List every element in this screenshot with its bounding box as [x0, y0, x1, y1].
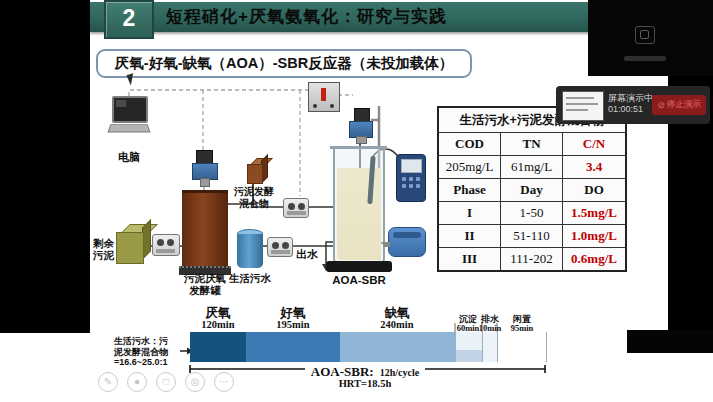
participant-video-tile — [588, 0, 713, 76]
computer-label: 电脑 — [108, 151, 150, 163]
screen-share-overlay: 屏幕演示中 01:00:51 ⊘ 停止演示 — [556, 86, 710, 124]
timer-control-box — [308, 82, 340, 112]
timeline-segment-anoxic — [340, 332, 455, 362]
zoom-tool-button[interactable]: ◎ — [185, 372, 205, 392]
presenter-toolbar: ✎ ● □ ◎ ⋯ — [98, 372, 234, 392]
parameters-table: 生活污水+污泥发酵混合物 COD TN C/N 205mg/L 61mg/L 3… — [437, 106, 627, 272]
participant-name-dim — [624, 56, 666, 61]
table-cell: 111-202 — [501, 248, 563, 270]
table-cell: TN — [501, 133, 563, 156]
timeline-segment-aerobic — [246, 332, 340, 362]
timeline-segment-anaerobic — [190, 332, 246, 362]
frame-tool-button[interactable]: □ — [156, 372, 176, 392]
stop-icon: ⊘ — [657, 101, 665, 110]
fermenter-tank — [182, 190, 228, 270]
stop-share-button[interactable]: ⊘ 停止演示 — [652, 95, 706, 115]
table-cell: I — [439, 202, 501, 225]
table-cell: C/N — [563, 133, 625, 156]
sewage-label: 生活污水 — [226, 272, 274, 284]
excess-sludge-label: 剩余污泥 — [92, 237, 115, 261]
table-cell: 1.5mg/L — [563, 202, 625, 225]
slide-title: 短程硝化+厌氧氨氧化：研究与实践 — [166, 5, 636, 28]
table-cell: Phase — [439, 179, 501, 202]
table-cell: Day — [501, 179, 563, 202]
pen-tool-button[interactable]: ✎ — [98, 372, 118, 392]
bottom-right-tile — [627, 330, 713, 353]
timeline-segment-idle — [497, 332, 547, 362]
table-cell: II — [439, 225, 501, 248]
table-cell: III — [439, 248, 501, 270]
table-cell: 205mg/L — [439, 156, 501, 179]
reactor-vessel — [333, 146, 385, 264]
ratio-label: 生活污水：污 泥发酵混合物 =16.6~25.0:1 — [114, 336, 182, 368]
peristaltic-pump-sewage — [267, 237, 293, 257]
timeline-segment-drain — [482, 332, 498, 362]
share-preview-thumbnail[interactable] — [562, 91, 604, 121]
table-cell: DO — [563, 179, 625, 202]
laser-tool-button[interactable]: ● — [127, 372, 147, 392]
table-cell: 51-110 — [501, 225, 563, 248]
peristaltic-pump-mixture — [283, 198, 309, 218]
keyboard-icon — [107, 124, 150, 132]
air-pump — [388, 227, 426, 257]
slide-subtitle: 厌氧-好氧-缺氧（AOA）-SBR反应器（未投加载体） — [96, 49, 472, 78]
table-cell: 0.6mg/L — [563, 248, 625, 270]
letterbox-left — [0, 0, 90, 333]
timeline-segment-settle — [455, 332, 483, 362]
reactor-base — [326, 261, 392, 272]
computer-icon — [112, 96, 148, 123]
shared-slide: 2 短程硝化+厌氧氨氧化：研究与实践 厌氧-好氧-缺氧（AOA）-SBR反应器（… — [90, 0, 668, 402]
fermenter-label: 污泥厌氧发酵罐 — [180, 272, 230, 296]
reactor-label: AOA-SBR — [330, 274, 388, 286]
meeting-screen: 2 短程硝化+厌氧氨氧化：研究与实践 厌氧-好氧-缺氧（AOA）-SBR反应器（… — [0, 0, 713, 402]
more-tools-button[interactable]: ⋯ — [214, 372, 234, 392]
table-cell: 1-50 — [501, 202, 563, 225]
table-cell: 61mg/L — [501, 156, 563, 179]
slide-number: 2 — [104, 0, 154, 39]
share-elapsed-time: 01:00:51 — [608, 104, 643, 114]
do-meter — [396, 154, 426, 202]
peristaltic-pump-sludge — [152, 234, 180, 256]
table-cell: COD — [439, 133, 501, 156]
table-cell: 3.4 — [563, 156, 625, 179]
effluent-label: 出水 — [294, 248, 320, 260]
mixture-label: 污泥发酵混合物 — [230, 186, 278, 210]
hrt-label: HRT=18.5h — [280, 378, 450, 389]
table-cell: 1.0mg/L — [563, 225, 625, 248]
camera-off-icon — [635, 26, 655, 44]
